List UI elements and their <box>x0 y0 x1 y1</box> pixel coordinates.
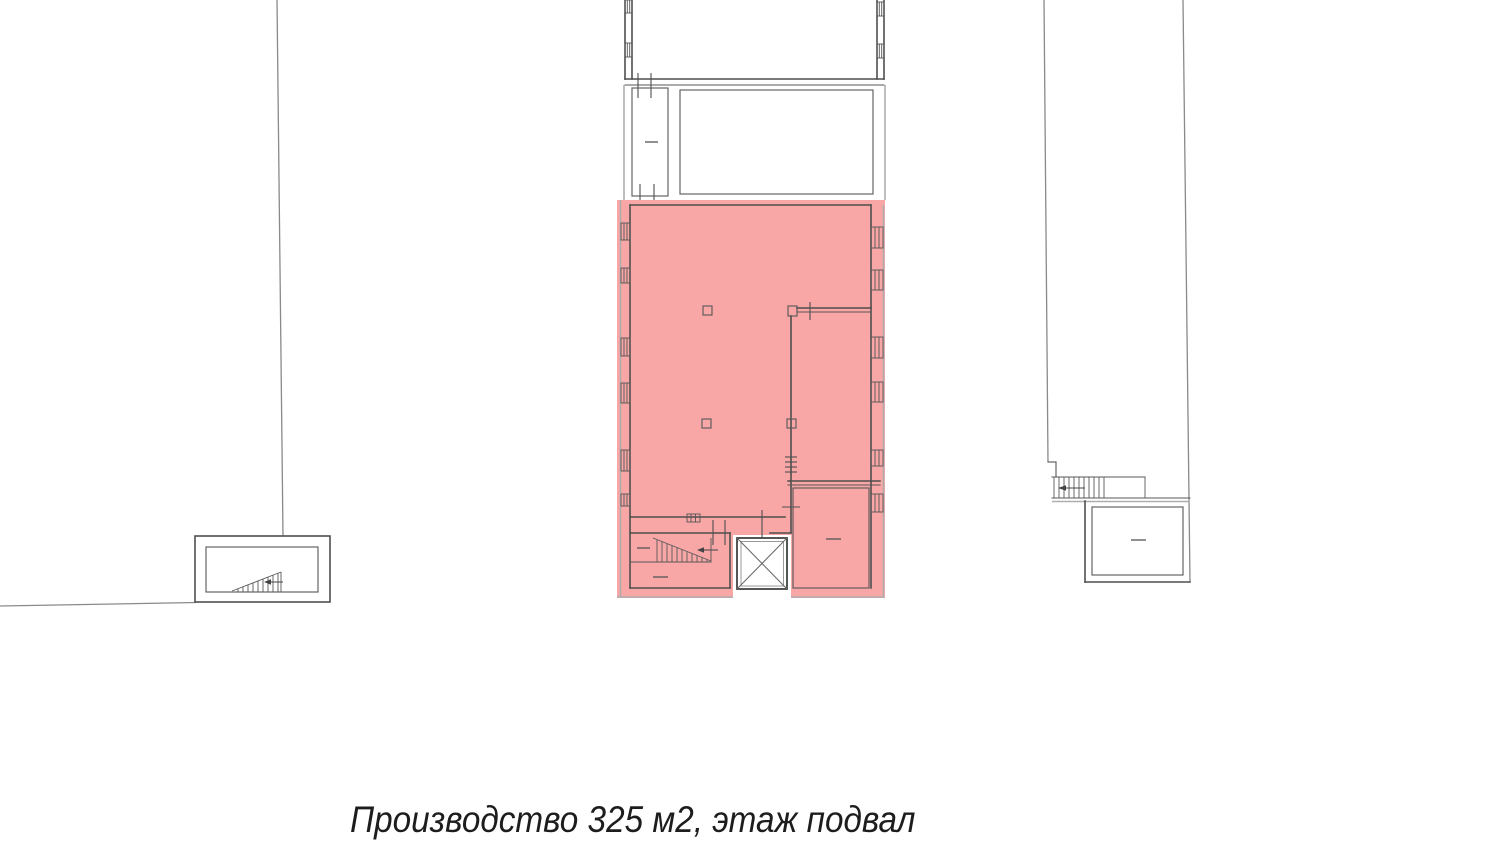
left-annex-stair-symbol <box>232 572 283 592</box>
floor-plan-page: Производство 325 м2, этаж подвал <box>0 0 1500 845</box>
upper-room-small <box>632 88 668 196</box>
floor-plan-drawing <box>0 0 1500 845</box>
stair-direction-arrow <box>264 579 271 584</box>
upper-room-large <box>680 90 873 194</box>
window-symbol <box>625 43 632 57</box>
right-building-room <box>1085 501 1190 582</box>
elevator-shaft <box>737 538 787 589</box>
plan-caption: Производство 325 м2, этаж подвал <box>350 799 915 841</box>
left-site-boundary-line <box>0 0 283 606</box>
window-symbol <box>877 2 884 16</box>
right-building-stair <box>1052 477 1190 502</box>
left-annex-outline <box>195 536 330 602</box>
window-symbol <box>877 44 884 58</box>
right-building-outline <box>1044 0 1190 582</box>
window-symbol <box>625 0 632 13</box>
upper-walls <box>624 0 885 200</box>
